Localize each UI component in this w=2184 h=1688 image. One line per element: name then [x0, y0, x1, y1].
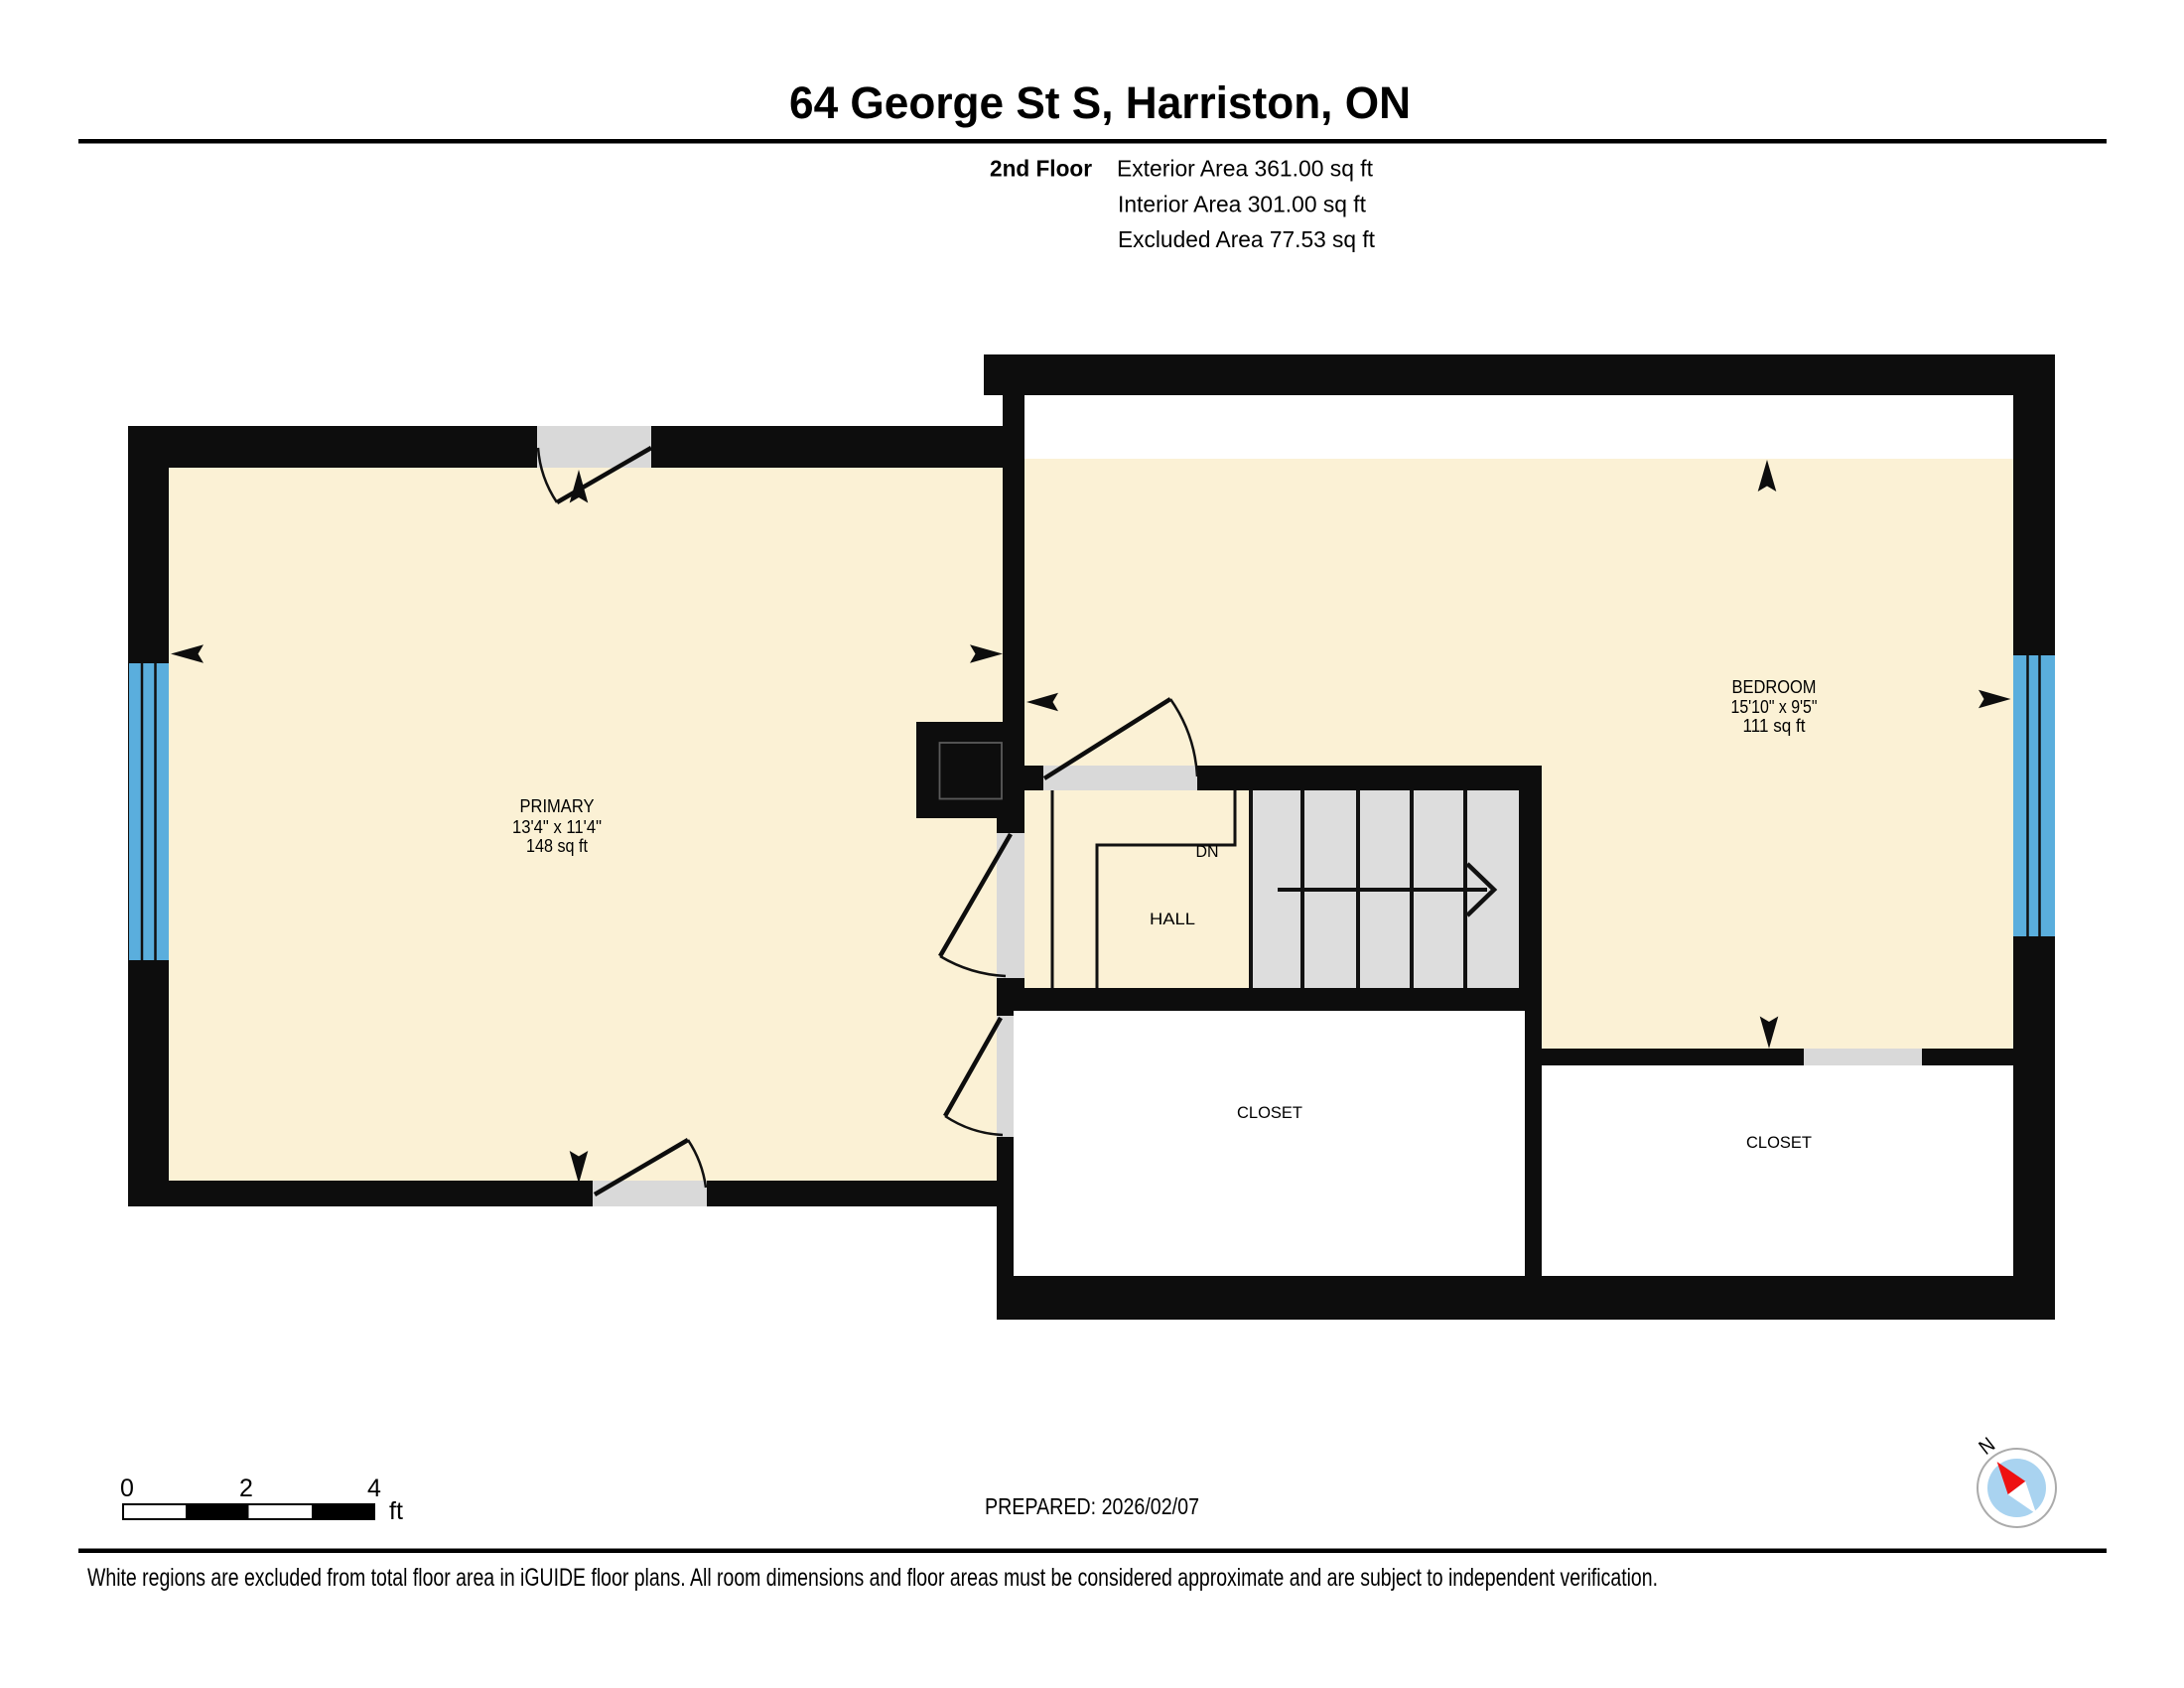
svg-text:PREPARED: 2026/02/07: PREPARED: 2026/02/07	[985, 1493, 1199, 1519]
svg-text:64 George St S, Harriston, ON: 64 George St S, Harriston, ON	[789, 77, 1411, 128]
svg-text:CLOSET: CLOSET	[1746, 1134, 1812, 1152]
svg-text:15'10" x 9'5": 15'10" x 9'5"	[1731, 696, 1818, 717]
svg-text:Excluded Area 77.53 sq ft: Excluded Area 77.53 sq ft	[1118, 226, 1376, 252]
svg-text:CLOSET: CLOSET	[1237, 1104, 1302, 1122]
svg-text:2: 2	[239, 1475, 253, 1502]
svg-text:HALL: HALL	[1150, 911, 1195, 928]
svg-text:0: 0	[120, 1475, 134, 1502]
svg-text:4: 4	[367, 1475, 381, 1502]
svg-text:2nd Floor: 2nd Floor	[990, 156, 1092, 182]
svg-text:DN: DN	[1196, 842, 1219, 861]
svg-text:Interior Area 301.00 sq ft: Interior Area 301.00 sq ft	[1118, 191, 1367, 216]
svg-text:Exterior Area 361.00 sq ft: Exterior Area 361.00 sq ft	[1117, 156, 1374, 182]
svg-text:White regions are excluded fro: White regions are excluded from total fl…	[87, 1564, 1658, 1592]
svg-text:13'4" x 11'4": 13'4" x 11'4"	[512, 816, 602, 837]
svg-text:ft: ft	[389, 1497, 403, 1525]
svg-text:148 sq ft: 148 sq ft	[526, 835, 588, 856]
svg-text:111 sq ft: 111 sq ft	[1743, 715, 1806, 736]
svg-text:PRIMARY: PRIMARY	[520, 795, 595, 816]
svg-text:BEDROOM: BEDROOM	[1732, 676, 1817, 697]
